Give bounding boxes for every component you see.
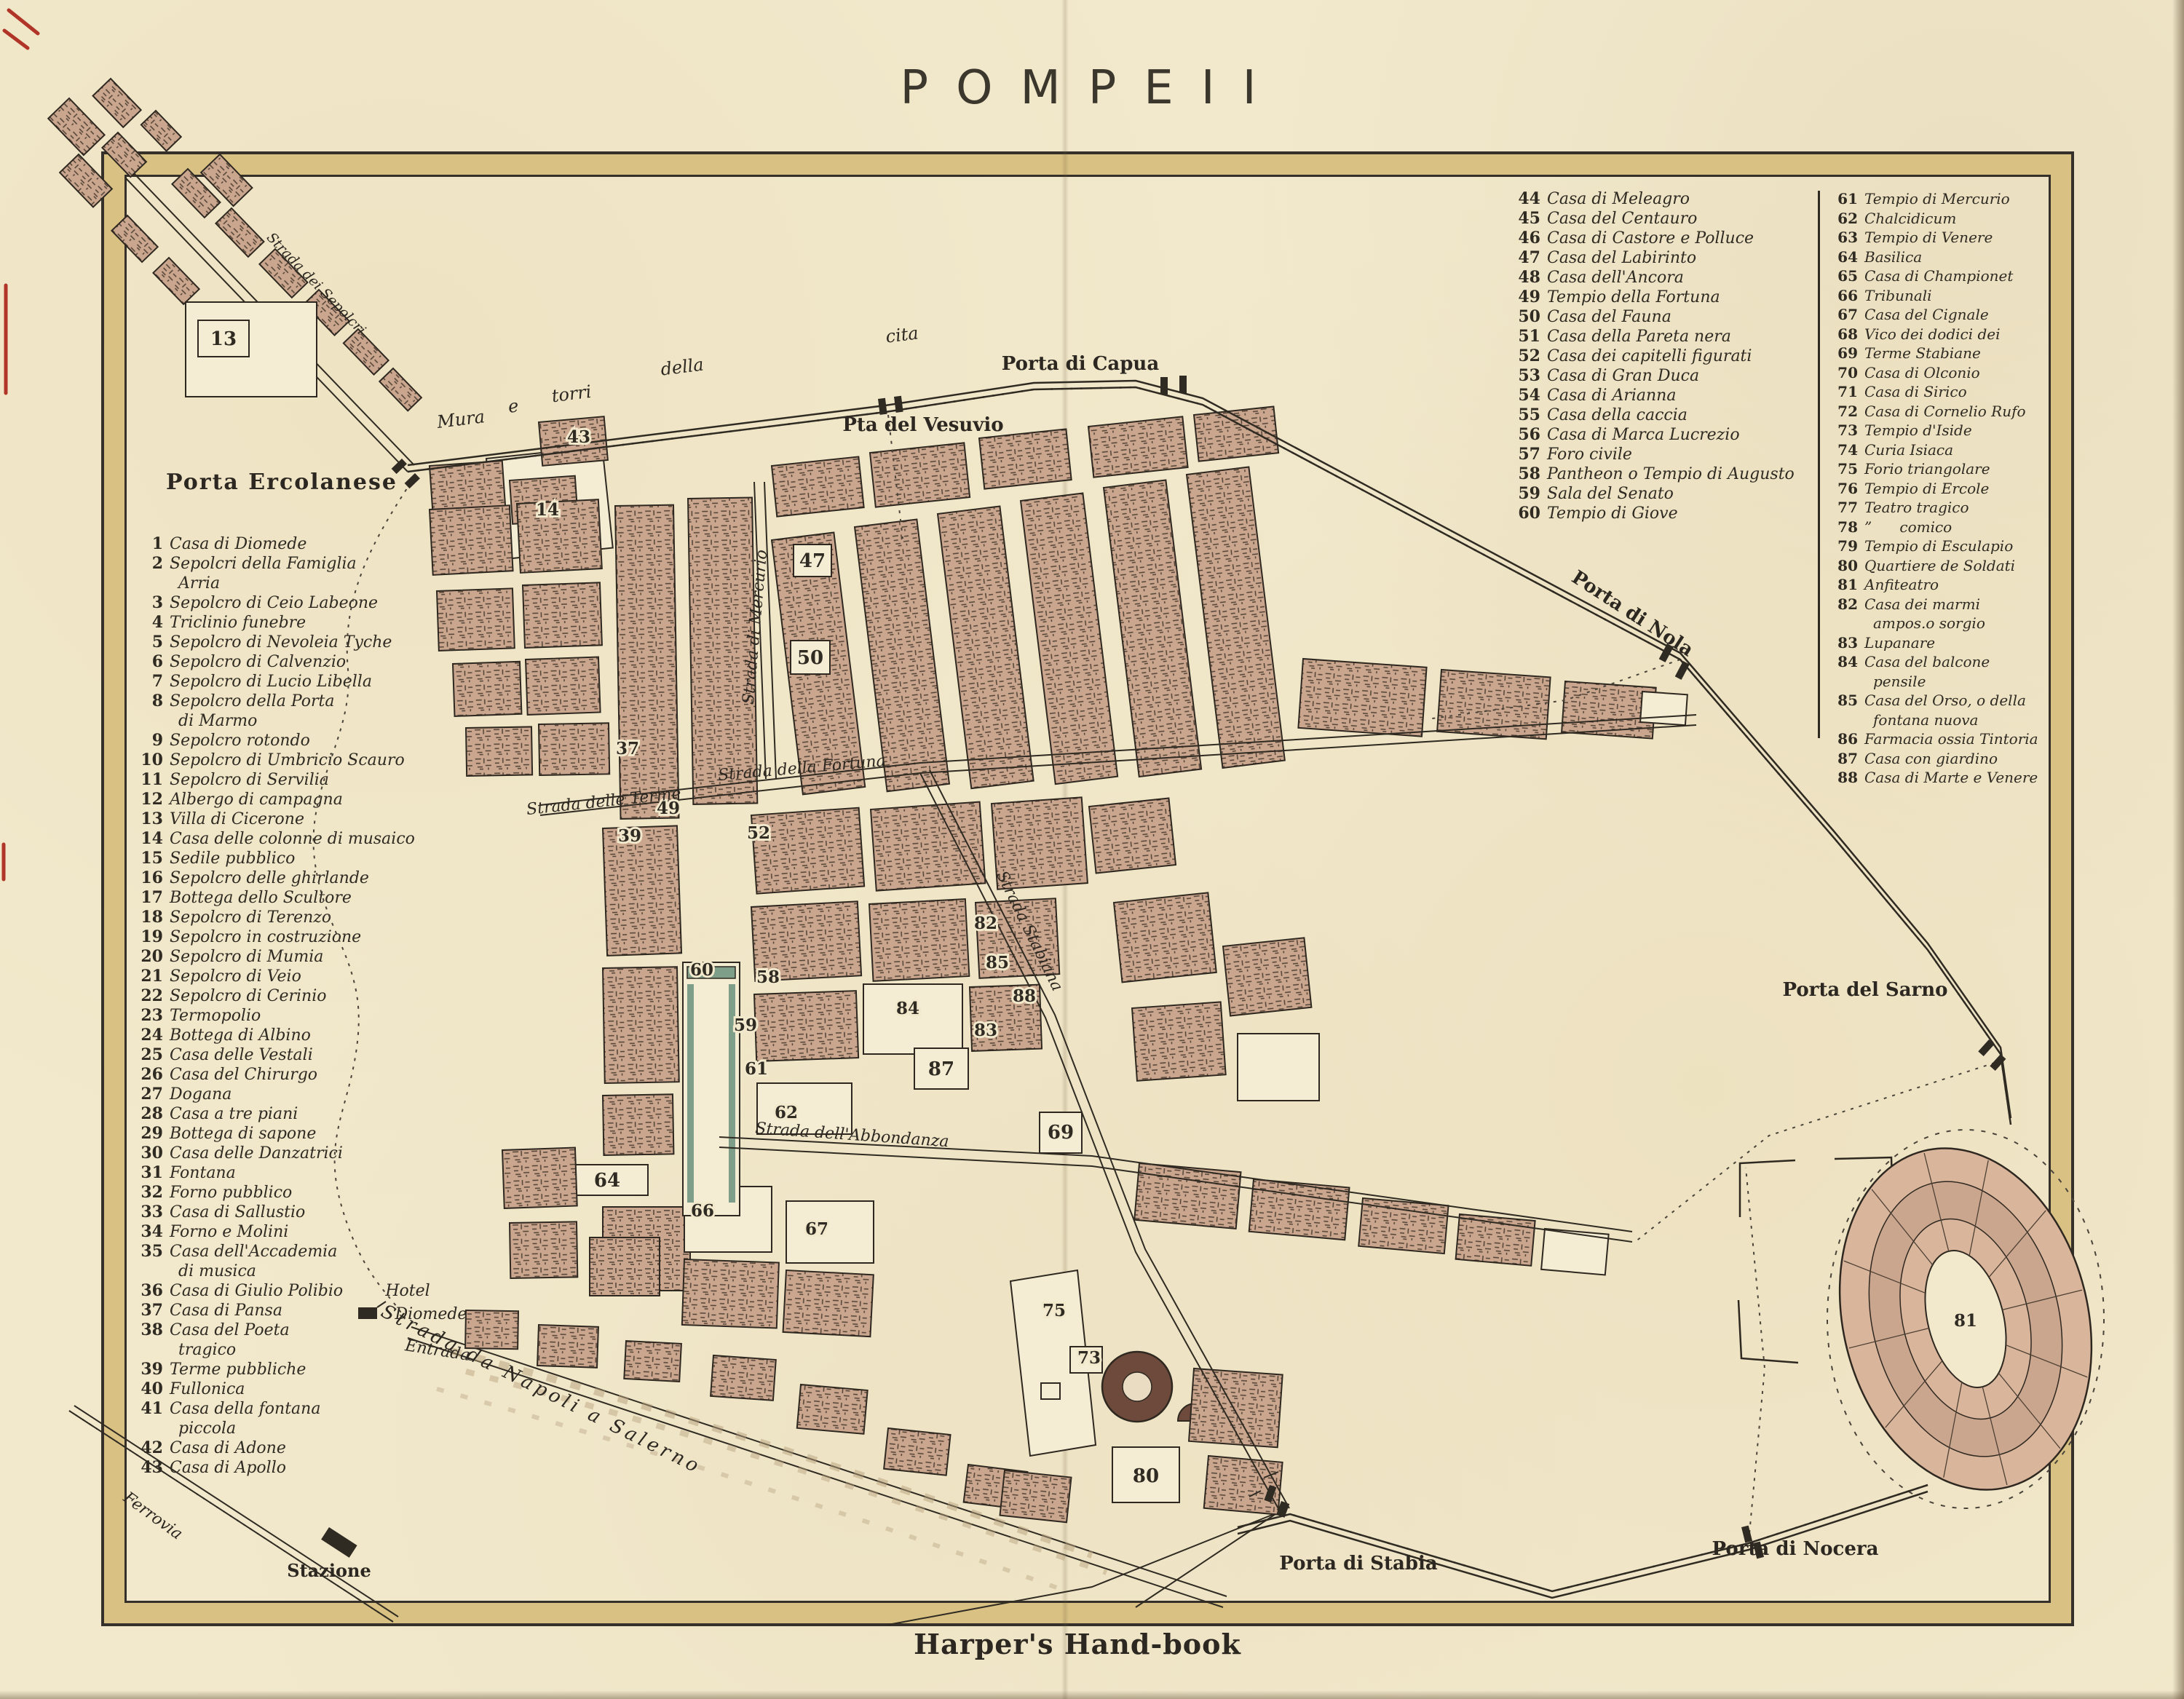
marker-84: 84	[896, 999, 919, 1018]
gate-capua-icon	[1160, 377, 1168, 395]
marker-50: 50	[797, 647, 823, 669]
region-six-west-blocks	[430, 497, 757, 818]
marker-58: 58	[756, 967, 780, 987]
gate-label-vesuvio: Pta del Vesuvio	[842, 414, 1003, 436]
excavation-edge	[314, 482, 411, 1319]
map-sheet: POMPEII 1 Casa di Diomede 2 Sepolcri del…	[0, 0, 2184, 1699]
marker-52: 52	[747, 823, 770, 843]
place-label-hotel: Hotel	[384, 1282, 430, 1300]
marker-83: 83	[974, 1021, 997, 1040]
gate-label-nocera: Porta di Nocera	[1712, 1538, 1879, 1560]
wall-word-cita: cita	[885, 322, 919, 346]
place-label-diomede: Diomede	[395, 1305, 467, 1323]
red-ink-marks	[4, 10, 38, 879]
marker-67: 67	[805, 1219, 828, 1239]
gate-label-ercolanese: Porta Ercolanese	[166, 470, 397, 495]
marker-82: 82	[974, 914, 997, 933]
roads-south	[888, 1513, 1278, 1625]
marker-81: 81	[1954, 1311, 1977, 1331]
marker-13: 13	[210, 328, 237, 350]
marker-37: 37	[616, 739, 639, 759]
street-label-ferrovia: Ferrovia	[119, 1488, 186, 1543]
wall-word-della: della	[660, 355, 705, 380]
marker-43: 43	[567, 427, 590, 447]
gate-label-nola: Porta di Nola	[1567, 566, 1697, 661]
marker-80: 80	[1133, 1465, 1159, 1487]
page-edge-right	[2172, 0, 2184, 1699]
wall-word-mura: Mura	[435, 406, 486, 432]
place-label-stazione: Stazione	[287, 1560, 371, 1581]
page-edge-bottom	[0, 1690, 2184, 1699]
marker-60: 60	[690, 960, 713, 980]
marker-69: 69	[1048, 1122, 1074, 1144]
footer-credit: Harper's Hand-book	[914, 1628, 1241, 1660]
marker-87: 87	[928, 1058, 954, 1080]
marker-47: 47	[799, 550, 826, 572]
map-canvas: 13 47 50 64 69 80 87 14 37 39 43 49 52 5…	[0, 0, 2184, 1699]
railway	[69, 1406, 398, 1622]
gate-label-capua: Porta di Capua	[1002, 353, 1160, 375]
forum-colonnade	[687, 984, 694, 1203]
marker-75: 75	[1042, 1301, 1066, 1320]
marker-66: 66	[691, 1201, 714, 1221]
road-napoli-salerno	[408, 1327, 1227, 1607]
gate-label-sarno: Porta del Sarno	[1782, 979, 1947, 1001]
wall-word-e: e	[507, 395, 520, 417]
marker-39: 39	[618, 826, 641, 846]
wall-word-torri: torri	[550, 381, 593, 406]
place-labels: Hotel Diomede Entrada Stazione	[287, 1282, 471, 1581]
marker-61: 61	[745, 1059, 768, 1079]
marker-62: 62	[775, 1103, 798, 1122]
marker-64: 64	[594, 1170, 620, 1192]
marker-59: 59	[734, 1015, 757, 1035]
marker-85: 85	[986, 953, 1009, 973]
gate-label-stabia: Porta di Stabia	[1279, 1553, 1438, 1575]
marker-88: 88	[1013, 986, 1036, 1006]
station-building	[321, 1527, 357, 1558]
marker-14: 14	[536, 500, 559, 520]
marker-73: 73	[1077, 1348, 1101, 1368]
